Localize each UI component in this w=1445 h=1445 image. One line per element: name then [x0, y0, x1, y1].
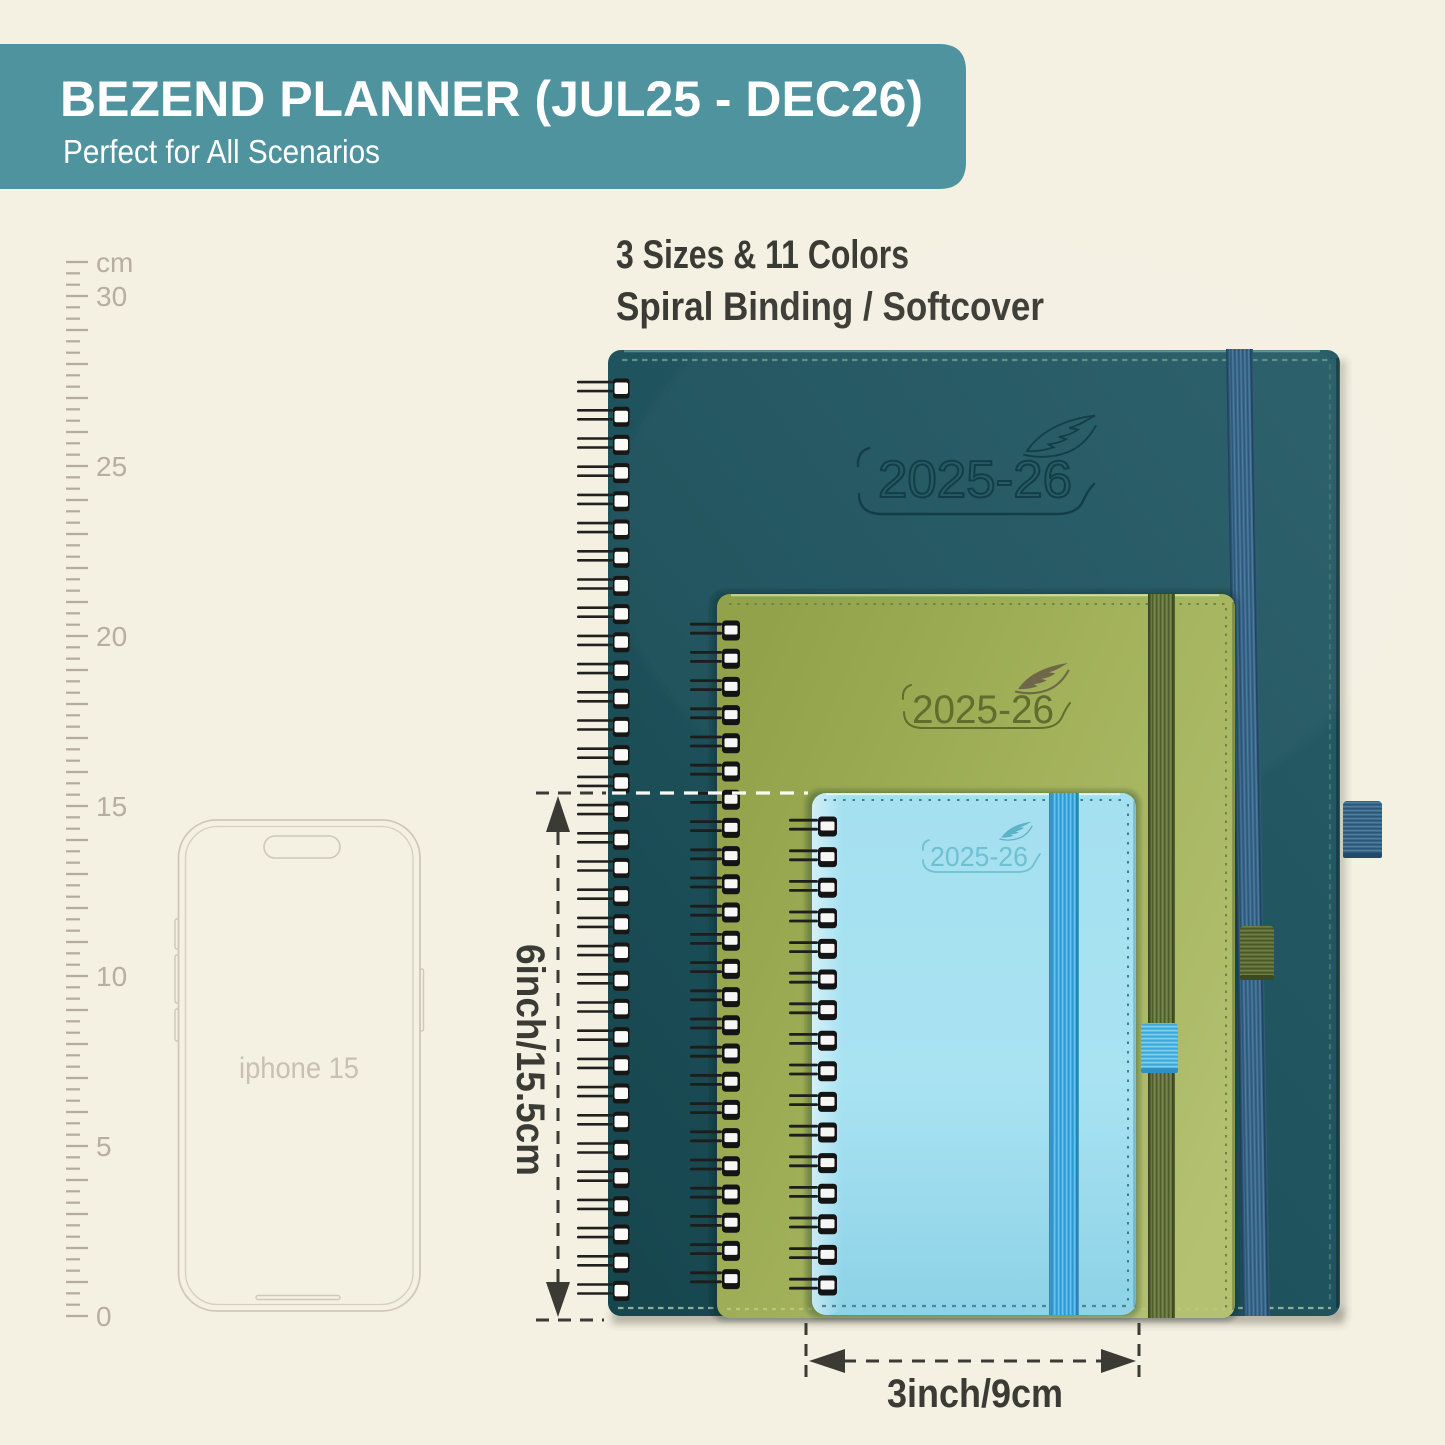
svg-text:15: 15 — [96, 791, 127, 822]
svg-text:20: 20 — [96, 621, 127, 652]
svg-text:BEZEND PLANNER (JUL25 - DEC26): BEZEND PLANNER (JUL25 - DEC26) — [60, 71, 923, 127]
svg-text:3inch/9cm: 3inch/9cm — [887, 1372, 1063, 1416]
svg-text:25: 25 — [96, 451, 127, 482]
svg-text:30: 30 — [96, 281, 127, 312]
svg-text:Perfect for All Scenarios: Perfect for All Scenarios — [63, 133, 380, 170]
svg-text:6inch/15.5cm: 6inch/15.5cm — [508, 944, 552, 1176]
svg-text:5: 5 — [96, 1131, 112, 1162]
svg-text:iphone 15: iphone 15 — [239, 1052, 359, 1085]
svg-text:cm: cm — [96, 247, 133, 278]
svg-text:10: 10 — [96, 961, 127, 992]
svg-text:2025-26: 2025-26 — [878, 451, 1072, 509]
svg-text:0: 0 — [96, 1301, 112, 1332]
svg-text:2025-26: 2025-26 — [930, 841, 1028, 872]
svg-text:2025-26: 2025-26 — [912, 688, 1054, 732]
